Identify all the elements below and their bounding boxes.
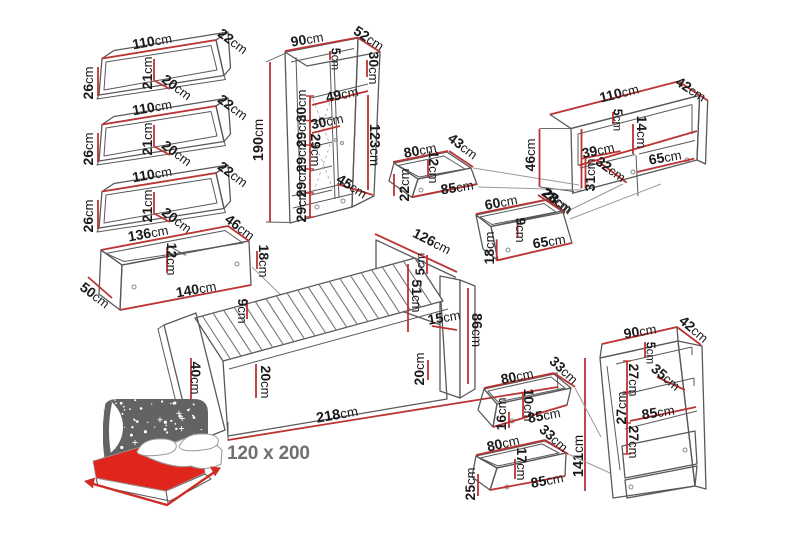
svg-text:18cm: 18cm bbox=[481, 232, 497, 265]
svg-text:16cm: 16cm bbox=[493, 398, 509, 431]
svg-text:18cm: 18cm bbox=[256, 245, 272, 278]
svg-text:9cm: 9cm bbox=[235, 298, 251, 323]
svg-text:5cm: 5cm bbox=[329, 48, 343, 70]
svg-text:27cm: 27cm bbox=[626, 426, 642, 459]
svg-text:21cm: 21cm bbox=[139, 190, 155, 223]
svg-text:21cm: 21cm bbox=[139, 123, 155, 156]
svg-text:86cm: 86cm bbox=[468, 313, 484, 347]
svg-text:5cm: 5cm bbox=[414, 253, 428, 275]
svg-text:29cm: 29cm bbox=[308, 134, 324, 167]
svg-text:9cm: 9cm bbox=[513, 217, 529, 242]
svg-text:5cm: 5cm bbox=[611, 109, 625, 131]
svg-text:17cm: 17cm bbox=[514, 448, 530, 481]
svg-text:51cm: 51cm bbox=[409, 280, 425, 313]
svg-text:12cm: 12cm bbox=[164, 243, 180, 276]
svg-text:190cm: 190cm bbox=[251, 119, 267, 161]
svg-text:29cm: 29cm bbox=[293, 190, 309, 223]
svg-text:30cm: 30cm bbox=[366, 52, 382, 85]
svg-text:5cm: 5cm bbox=[644, 342, 658, 364]
svg-text:120 x 200: 120 x 200 bbox=[227, 443, 310, 464]
svg-text:27cm: 27cm bbox=[613, 392, 629, 425]
svg-text:123cm: 123cm bbox=[366, 124, 382, 166]
svg-text:12cm: 12cm bbox=[426, 151, 442, 184]
svg-text:20cm: 20cm bbox=[411, 353, 427, 386]
svg-text:20cm: 20cm bbox=[258, 366, 274, 399]
svg-text:21cm: 21cm bbox=[139, 57, 155, 90]
svg-text:26cm: 26cm bbox=[80, 200, 96, 233]
svg-text:14cm: 14cm bbox=[634, 116, 650, 149]
svg-text:31cm: 31cm bbox=[582, 159, 598, 192]
svg-text:26cm: 26cm bbox=[80, 133, 96, 166]
svg-text:27cm: 27cm bbox=[626, 364, 642, 397]
svg-text:26cm: 26cm bbox=[80, 67, 96, 100]
svg-text:40cm: 40cm bbox=[188, 362, 204, 395]
svg-text:25cm: 25cm bbox=[462, 468, 478, 501]
svg-text:22cm: 22cm bbox=[396, 169, 412, 202]
svg-text:46cm: 46cm bbox=[522, 139, 538, 172]
